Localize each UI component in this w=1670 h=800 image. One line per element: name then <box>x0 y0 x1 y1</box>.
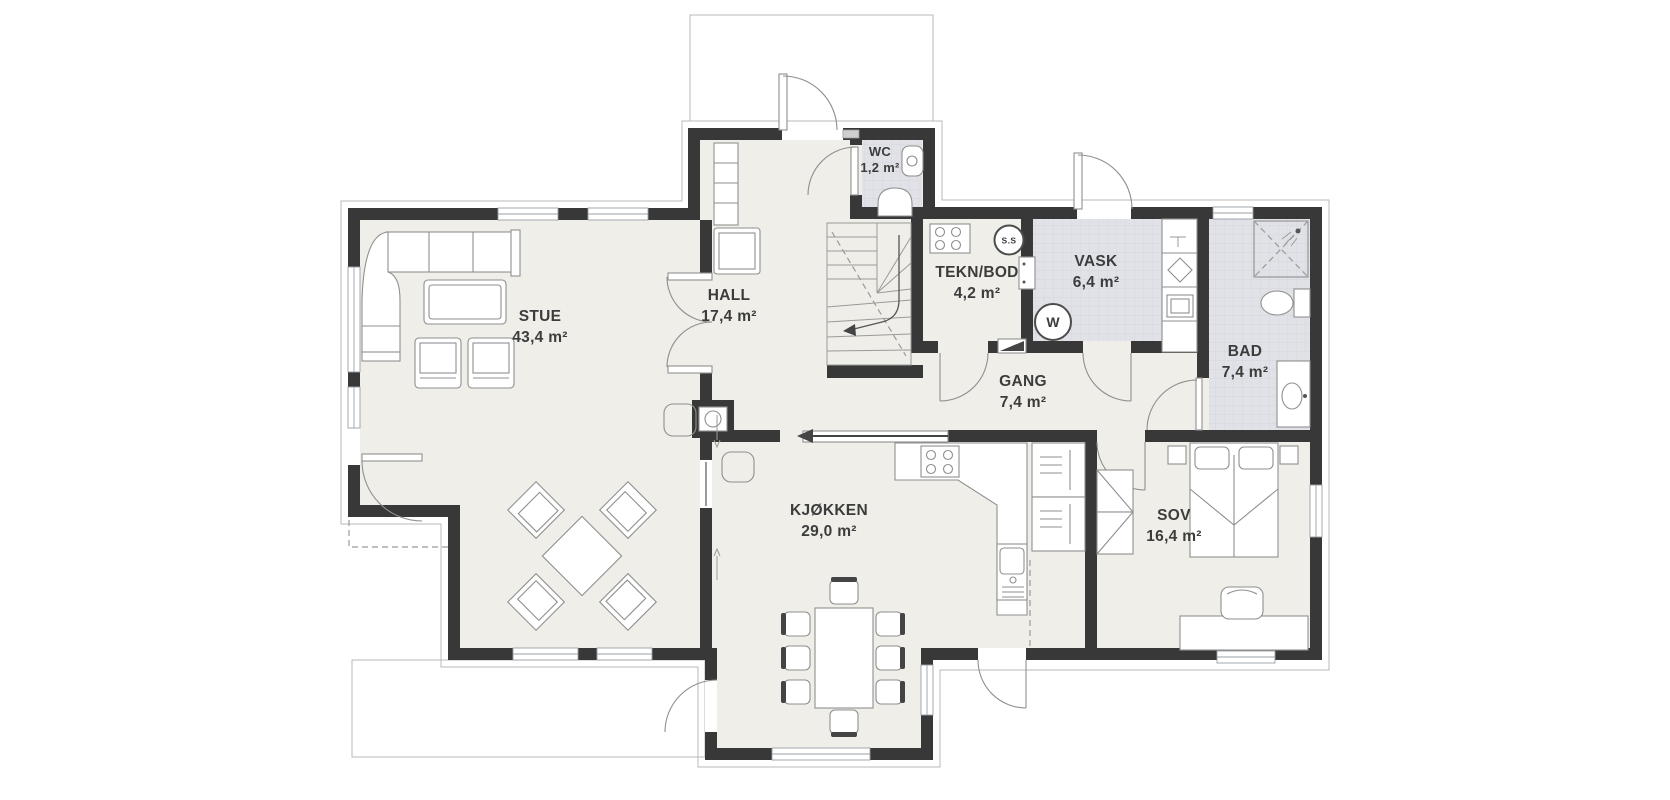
threshold-vent <box>998 339 1026 353</box>
room-label-kjokken: KJØKKEN 29,0 m² <box>790 500 868 542</box>
floor-plan: STUE 43,4 m² HALL 17,4 m² WC 1,2 m² TEKN… <box>0 0 1670 800</box>
washbasin-icon <box>1277 361 1310 427</box>
entrance-door <box>779 74 837 130</box>
desk-chair <box>1221 587 1263 619</box>
kitchen-sink-icon <box>997 544 1027 600</box>
room-area: 6,4 m² <box>1073 272 1120 293</box>
window <box>772 748 870 760</box>
room-area: 1,2 m² <box>860 160 899 176</box>
dining-chair <box>781 646 810 670</box>
armchair <box>415 338 461 388</box>
room-name: GANG <box>999 371 1047 392</box>
desk <box>1180 616 1308 650</box>
chimney-icon <box>692 400 734 438</box>
bed <box>1190 443 1278 557</box>
vask-exterior-door <box>1074 153 1132 209</box>
coffee-table <box>424 280 506 324</box>
garden-door <box>978 660 1026 708</box>
room-label-hall: HALL 17,4 m² <box>701 285 757 327</box>
window <box>1217 651 1275 663</box>
room-name: VASK <box>1073 251 1120 272</box>
hall-cabinet <box>714 228 760 274</box>
room-name: SOV <box>1146 505 1202 526</box>
stove-icon <box>921 446 959 477</box>
kitchen-tall-cabinets <box>1032 443 1085 551</box>
room-label-bad: BAD 7,4 m² <box>1222 341 1269 383</box>
wc-sink-icon <box>902 146 923 176</box>
laundry-counter <box>1162 219 1197 352</box>
wall-hatch <box>1019 257 1035 289</box>
room-label-vask: VASK 6,4 m² <box>1073 251 1120 293</box>
room-name: BAD <box>1222 341 1269 362</box>
entrance-threshold <box>843 130 859 138</box>
dining-chair <box>781 680 810 704</box>
room-area: 16,4 m² <box>1146 526 1202 547</box>
washing-machine-icon: W <box>1034 303 1072 341</box>
washing-machine-label: W <box>1046 314 1059 330</box>
room-label-stue: STUE 43,4 m² <box>512 306 568 348</box>
dining-chair <box>876 612 905 636</box>
dining-chair <box>876 646 905 670</box>
window <box>1213 207 1253 219</box>
central-vacuum-label: S.S <box>1002 235 1017 245</box>
nightstand <box>1280 446 1298 464</box>
room-name: HALL <box>701 285 757 306</box>
room-name: KJØKKEN <box>790 500 868 521</box>
window <box>921 665 933 715</box>
room-area: 43,4 m² <box>512 327 568 348</box>
boiler-icon <box>930 224 970 253</box>
toilet-icon <box>1261 289 1310 317</box>
dining-chair <box>830 710 858 737</box>
dining-chair <box>781 612 810 636</box>
room-label-wc: WC 1,2 m² <box>860 144 899 176</box>
central-vacuum-icon: S.S <box>994 225 1025 256</box>
room-label-sov: SOV 16,4 m² <box>1146 505 1202 547</box>
window <box>348 387 360 428</box>
room-area: 4,2 m² <box>935 283 1018 304</box>
room-area: 7,4 m² <box>1222 362 1269 383</box>
hall-closet <box>714 143 738 225</box>
window <box>588 208 648 220</box>
nightstand <box>1168 446 1186 464</box>
dining-table <box>815 608 873 708</box>
room-name: WC <box>860 144 899 160</box>
floor-plan-drawing <box>0 0 1670 800</box>
room-area: 7,4 m² <box>999 392 1047 413</box>
wc-toilet-icon <box>878 188 912 216</box>
window <box>597 648 652 660</box>
window <box>498 208 558 220</box>
armchair <box>468 338 514 388</box>
dining-chair <box>876 680 905 704</box>
room-label-gang: GANG 7,4 m² <box>999 371 1047 413</box>
room-area: 29,0 m² <box>790 521 868 542</box>
window <box>513 648 578 660</box>
wardrobe <box>1097 470 1133 554</box>
dining-chair <box>830 577 858 604</box>
terrace-outline <box>352 660 705 757</box>
window <box>348 267 360 372</box>
room-area: 17,4 m² <box>701 306 757 327</box>
porch-outline <box>690 15 933 121</box>
room-label-tekn-bod: TEKN/BOD 4,2 m² <box>935 262 1018 304</box>
room-name: STUE <box>512 306 568 327</box>
room-name: TEKN/BOD <box>935 262 1018 283</box>
window <box>1310 485 1322 537</box>
